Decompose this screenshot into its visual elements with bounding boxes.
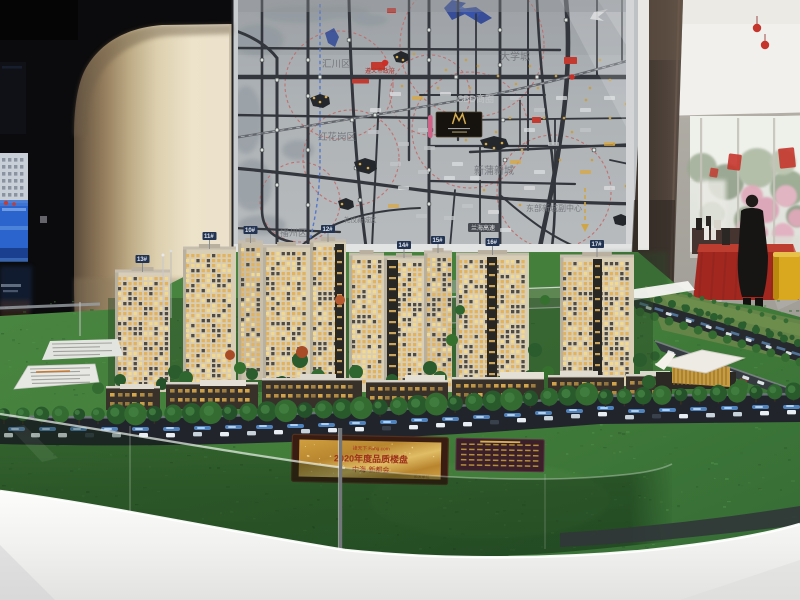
svg-text:礼仪新城区: 礼仪新城区 — [344, 215, 377, 224]
svg-text:14#: 14# — [399, 243, 410, 249]
svg-text:12#: 12# — [323, 227, 334, 233]
svg-text:播州区: 播州区 — [280, 227, 307, 238]
svg-text:13#: 13# — [137, 257, 148, 263]
svg-text:兰海高速: 兰海高速 — [471, 224, 495, 232]
svg-text:汇川区: 汇川区 — [322, 59, 351, 70]
svg-text:东部新城副中心: 东部新城副中心 — [526, 203, 582, 213]
svg-text:红花岗区: 红花岗区 — [318, 131, 357, 143]
svg-text:16#: 16# — [487, 240, 498, 246]
svg-text:遵义市政府: 遵义市政府 — [365, 67, 395, 75]
svg-text:17#: 17# — [592, 242, 603, 248]
svg-text:新蒲新城: 新蒲新城 — [474, 164, 514, 177]
svg-text:10#: 10# — [245, 228, 256, 234]
svg-text:2020年度品质楼盘: 2020年度品质楼盘 — [334, 452, 408, 465]
svg-text:15#: 15# — [433, 238, 444, 244]
svg-text:11#: 11# — [204, 234, 214, 240]
svg-text:CBD商圈: CBD商圈 — [457, 93, 494, 104]
svg-text:大学城: 大学城 — [500, 50, 530, 63]
